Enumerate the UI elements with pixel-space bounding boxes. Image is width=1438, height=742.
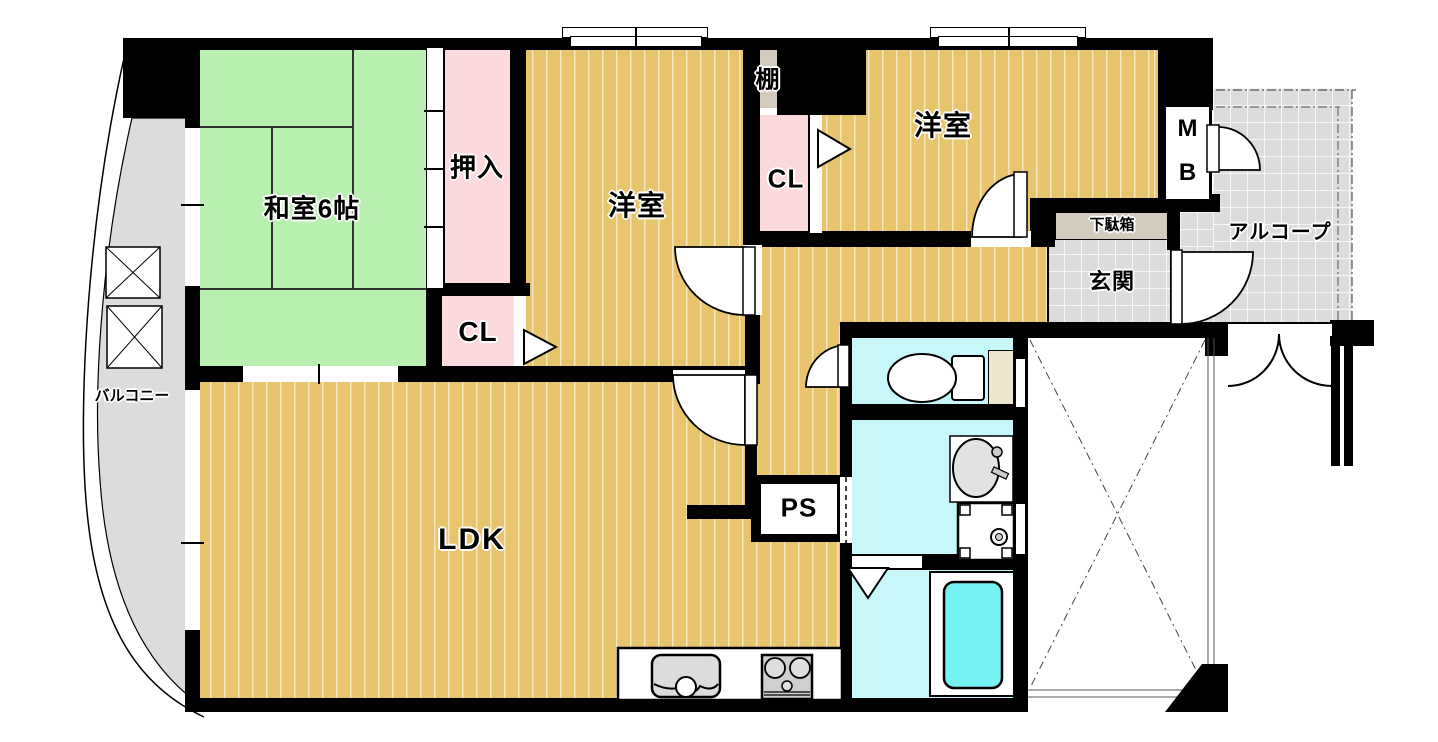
door-arc-gate-right bbox=[1279, 334, 1332, 386]
wall-washitsu-right bbox=[426, 288, 442, 372]
void-x-line bbox=[1030, 340, 1205, 688]
label-shoe-cabinet: 下駄箱 bbox=[1089, 214, 1134, 235]
equipment-x bbox=[107, 306, 162, 368]
wall-oshiire-right bbox=[510, 48, 526, 296]
window-washitsu bbox=[185, 128, 200, 286]
label-washitsu: 和室6帖 bbox=[264, 189, 360, 226]
tatami-line bbox=[352, 48, 354, 290]
toilet-shelf bbox=[988, 350, 1015, 408]
shoji-tick bbox=[424, 226, 444, 228]
label-entrance: 玄関 bbox=[1089, 264, 1135, 296]
wall-toilet-wash-divider bbox=[846, 404, 1016, 420]
label-pipe-space: PS bbox=[781, 493, 818, 524]
door-arc-gate-left bbox=[1228, 334, 1279, 386]
bathroom bbox=[852, 570, 1013, 700]
window-tick bbox=[1008, 27, 1010, 47]
window-toilet-shaft bbox=[1015, 358, 1026, 408]
wall-bottom bbox=[185, 698, 1028, 712]
balcony-equipment-box bbox=[107, 306, 162, 368]
hallway bbox=[757, 243, 1047, 326]
window-washer-shaft bbox=[1015, 503, 1026, 555]
wall-kitchen-stub bbox=[687, 505, 757, 519]
label-western-right: 洋室 bbox=[914, 104, 972, 144]
wall-neighbor-top bbox=[1330, 320, 1374, 346]
doorway-bathroom bbox=[852, 556, 922, 568]
meter-box-label-b: B bbox=[1166, 151, 1209, 195]
wall-alcove-stub bbox=[1205, 322, 1228, 356]
equipment-x bbox=[106, 247, 160, 298]
window-tick bbox=[181, 542, 204, 544]
label-alcove: アルコープ bbox=[1228, 216, 1331, 245]
doorway-western-center bbox=[743, 245, 762, 315]
meter-box: M B bbox=[1163, 104, 1212, 202]
wall-pillar-topleft bbox=[123, 38, 190, 118]
label-closet-left: CL bbox=[458, 316, 497, 348]
genkan-step-line bbox=[1047, 240, 1049, 325]
floor-plan: M B bbox=[0, 0, 1438, 742]
doorway-western-right bbox=[971, 231, 1031, 247]
window-tick bbox=[181, 204, 204, 206]
corner-wall-diagonal bbox=[1165, 664, 1228, 712]
label-closet-center: CL bbox=[768, 164, 805, 195]
closet-center-door bbox=[808, 115, 822, 233]
equipment-x bbox=[107, 306, 162, 368]
label-ldk: LDK bbox=[438, 523, 506, 557]
washroom bbox=[852, 420, 1013, 556]
doorway-ldk bbox=[673, 370, 745, 382]
wall-bath-block-top bbox=[840, 322, 1228, 338]
label-oshiire: 押入 bbox=[450, 148, 504, 185]
shoji-tick bbox=[424, 168, 444, 170]
meter-box-label-m: M bbox=[1166, 107, 1209, 151]
equipment-x bbox=[106, 247, 160, 298]
tatami-line bbox=[190, 288, 442, 290]
void-x-line bbox=[1030, 340, 1205, 688]
shoji-tick bbox=[424, 110, 444, 112]
wall-shelf-niche bbox=[777, 38, 866, 115]
sliding-door-washitsu-ldk bbox=[243, 366, 398, 382]
label-western-center: 洋室 bbox=[608, 184, 666, 224]
alcove-floor bbox=[1213, 88, 1352, 324]
label-shelf: 棚 bbox=[756, 60, 781, 95]
wall-topright-block bbox=[1158, 38, 1213, 110]
window-tick bbox=[635, 27, 637, 47]
shoji-tick bbox=[318, 364, 320, 384]
label-balcony: バルコニー bbox=[95, 385, 170, 406]
doorway-alcove-gate bbox=[1228, 324, 1332, 336]
doorway-washroom bbox=[840, 477, 852, 543]
wall-genkan-right bbox=[1170, 250, 1180, 326]
window-ldk bbox=[185, 390, 200, 630]
wall-neighbor-gapline bbox=[1340, 346, 1344, 466]
balcony-equipment-box bbox=[106, 247, 160, 298]
alcove-floor-left bbox=[1180, 212, 1213, 324]
